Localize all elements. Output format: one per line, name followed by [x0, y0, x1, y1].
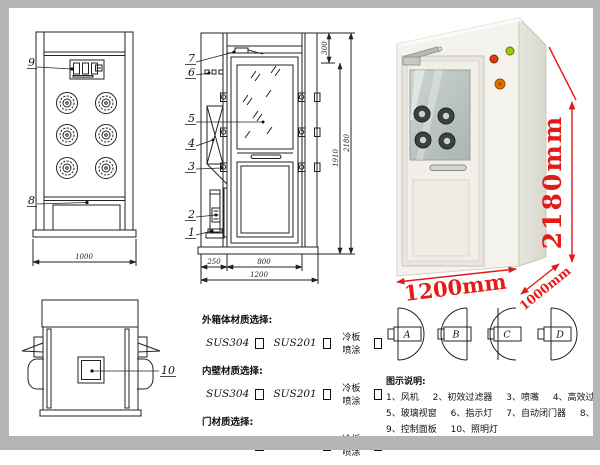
legend-item: 3、喷嘴 [506, 393, 539, 403]
top-view-drawing: 10 [20, 295, 195, 445]
material-checkbox[interactable] [374, 389, 382, 400]
dim-2180: 2180 [343, 134, 351, 153]
legend-item: 7、自动闭门器 [506, 409, 566, 419]
front-width-dim: 1000 [75, 253, 93, 261]
material-checkbox[interactable] [255, 389, 263, 400]
legend-item: 4、高效过滤器 [553, 393, 600, 403]
door-swing-options: A B C D [387, 302, 579, 370]
fan-pipe-assembly [206, 188, 227, 238]
green-indicator-light [506, 47, 514, 55]
legend-item: 2、初效过滤器 [433, 393, 493, 403]
option-label: SUS201 [273, 337, 316, 349]
legend-item: 6、指示灯 [451, 409, 493, 419]
part-label-6: 6 [188, 66, 195, 79]
legend-row: 1、风机 2、初效过滤器 3、喷嘴 4、高效过滤器 [386, 390, 592, 403]
material-section-title: 内壁材质选择: [202, 363, 382, 377]
material-checkbox[interactable] [255, 338, 263, 349]
red-indicator-light [490, 55, 498, 63]
material-options-row: SUS304 SUS201 冷板喷涂 [206, 381, 382, 407]
right-wing [138, 343, 160, 352]
material-checkbox[interactable] [374, 440, 382, 451]
side-view-drawing: 7 6 5 4 3 2 1 300 1910 2180 250 800 1200 [183, 18, 378, 288]
legend-item: 8、红外线感应器 [580, 409, 600, 419]
right-handle [137, 359, 153, 389]
part-label-2: 2 [187, 208, 195, 221]
legend-item: 9、控制面板 [386, 425, 437, 435]
part-label-5: 5 [188, 112, 195, 125]
legend-item: 5、玻璃视窗 [386, 409, 437, 419]
left-handle [28, 359, 44, 389]
part-label-8: 8 [28, 194, 35, 207]
lower-trim-bar [44, 197, 125, 201]
material-checkbox[interactable] [323, 338, 331, 349]
control-panel [70, 60, 104, 79]
legend-row: 5、玻璃视窗 6、指示灯 7、自动闭门器 8、红外线感应器 [386, 406, 592, 419]
door-handle [251, 155, 281, 159]
dim-300: 300 [321, 41, 329, 55]
product-photo: 2180mm 1200mm 1000mm [383, 10, 578, 350]
door-glass [237, 65, 293, 149]
door-option-letter: C [503, 330, 511, 341]
glass-hatch [243, 66, 280, 138]
option-label: 冷板喷涂 [342, 432, 367, 458]
dim-250: 250 [206, 258, 221, 266]
dim-1910: 1910 [332, 149, 340, 167]
material-section-title: 外箱体材质选择: [202, 312, 382, 326]
filter-unit [207, 106, 227, 184]
door-option-letter: D [555, 330, 564, 341]
nozzle-grid [57, 93, 117, 179]
door-option-c[interactable]: C [487, 302, 528, 366]
option-label: 冷板喷涂 [342, 381, 367, 407]
legend: 图示说明: 1、风机 2、初效过滤器 3、喷嘴 4、高效过滤器 5、玻璃视窗 6… [386, 374, 592, 438]
part-label-1: 1 [188, 226, 195, 239]
door-option-d[interactable]: D [537, 302, 578, 366]
option-label: SUS304 [206, 388, 249, 400]
top-view-back [42, 300, 138, 327]
option-label: SUS201 [273, 439, 316, 451]
door-option-letter: B [452, 330, 460, 341]
part-label-4: 4 [187, 137, 195, 150]
base-plate [33, 230, 136, 237]
left-wing [22, 343, 43, 352]
photo-height-dim: 2180mm [538, 115, 567, 250]
side-part-labels: 7 6 5 4 3 2 1 [185, 51, 265, 240]
legend-item: 1、风机 [386, 393, 419, 403]
side-base-plate [198, 247, 318, 254]
material-selection: 外箱体材质选择: SUS304 SUS201 冷板喷涂 内壁材质选择: SUS3… [196, 312, 382, 465]
material-checkbox[interactable] [323, 440, 331, 451]
door-option-a[interactable]: A [387, 302, 428, 366]
dim-800: 800 [257, 258, 271, 266]
option-label: SUS201 [273, 388, 316, 400]
material-checkbox[interactable] [374, 338, 382, 349]
option-label: SUS304 [206, 439, 249, 451]
top-trim-bar [44, 52, 125, 56]
part-label-7: 7 [188, 52, 195, 65]
top-view-body [43, 327, 138, 410]
part-label-3: 3 [188, 160, 195, 173]
legend-title: 图示说明: [386, 374, 592, 387]
dim-1200: 1200 [250, 271, 268, 279]
material-checkbox[interactable] [255, 440, 263, 451]
door-option-b[interactable]: B [437, 302, 478, 366]
legend-item: 10、照明灯 [451, 425, 498, 435]
front-view-drawing: 9 8 1000 [26, 18, 186, 286]
door-option-letter: A [403, 330, 411, 341]
part-label-9: 9 [28, 56, 35, 69]
material-checkbox[interactable] [323, 389, 331, 400]
photo-door-handle [430, 165, 466, 171]
option-label: 冷板喷涂 [342, 330, 367, 356]
part-label-10: 10 [161, 364, 175, 377]
cabinet-3d [397, 18, 546, 276]
material-options-row: SUS304 SUS201 冷板喷涂 [206, 330, 382, 356]
option-label: SUS304 [206, 337, 249, 349]
material-options-row: SUS304 SUS201 冷板喷涂 [206, 432, 382, 458]
material-section-title: 门材质选择: [202, 414, 382, 428]
legend-row: 9、控制面板 10、照明灯 [386, 422, 592, 435]
air-return-grille [53, 205, 120, 230]
door [227, 53, 302, 247]
